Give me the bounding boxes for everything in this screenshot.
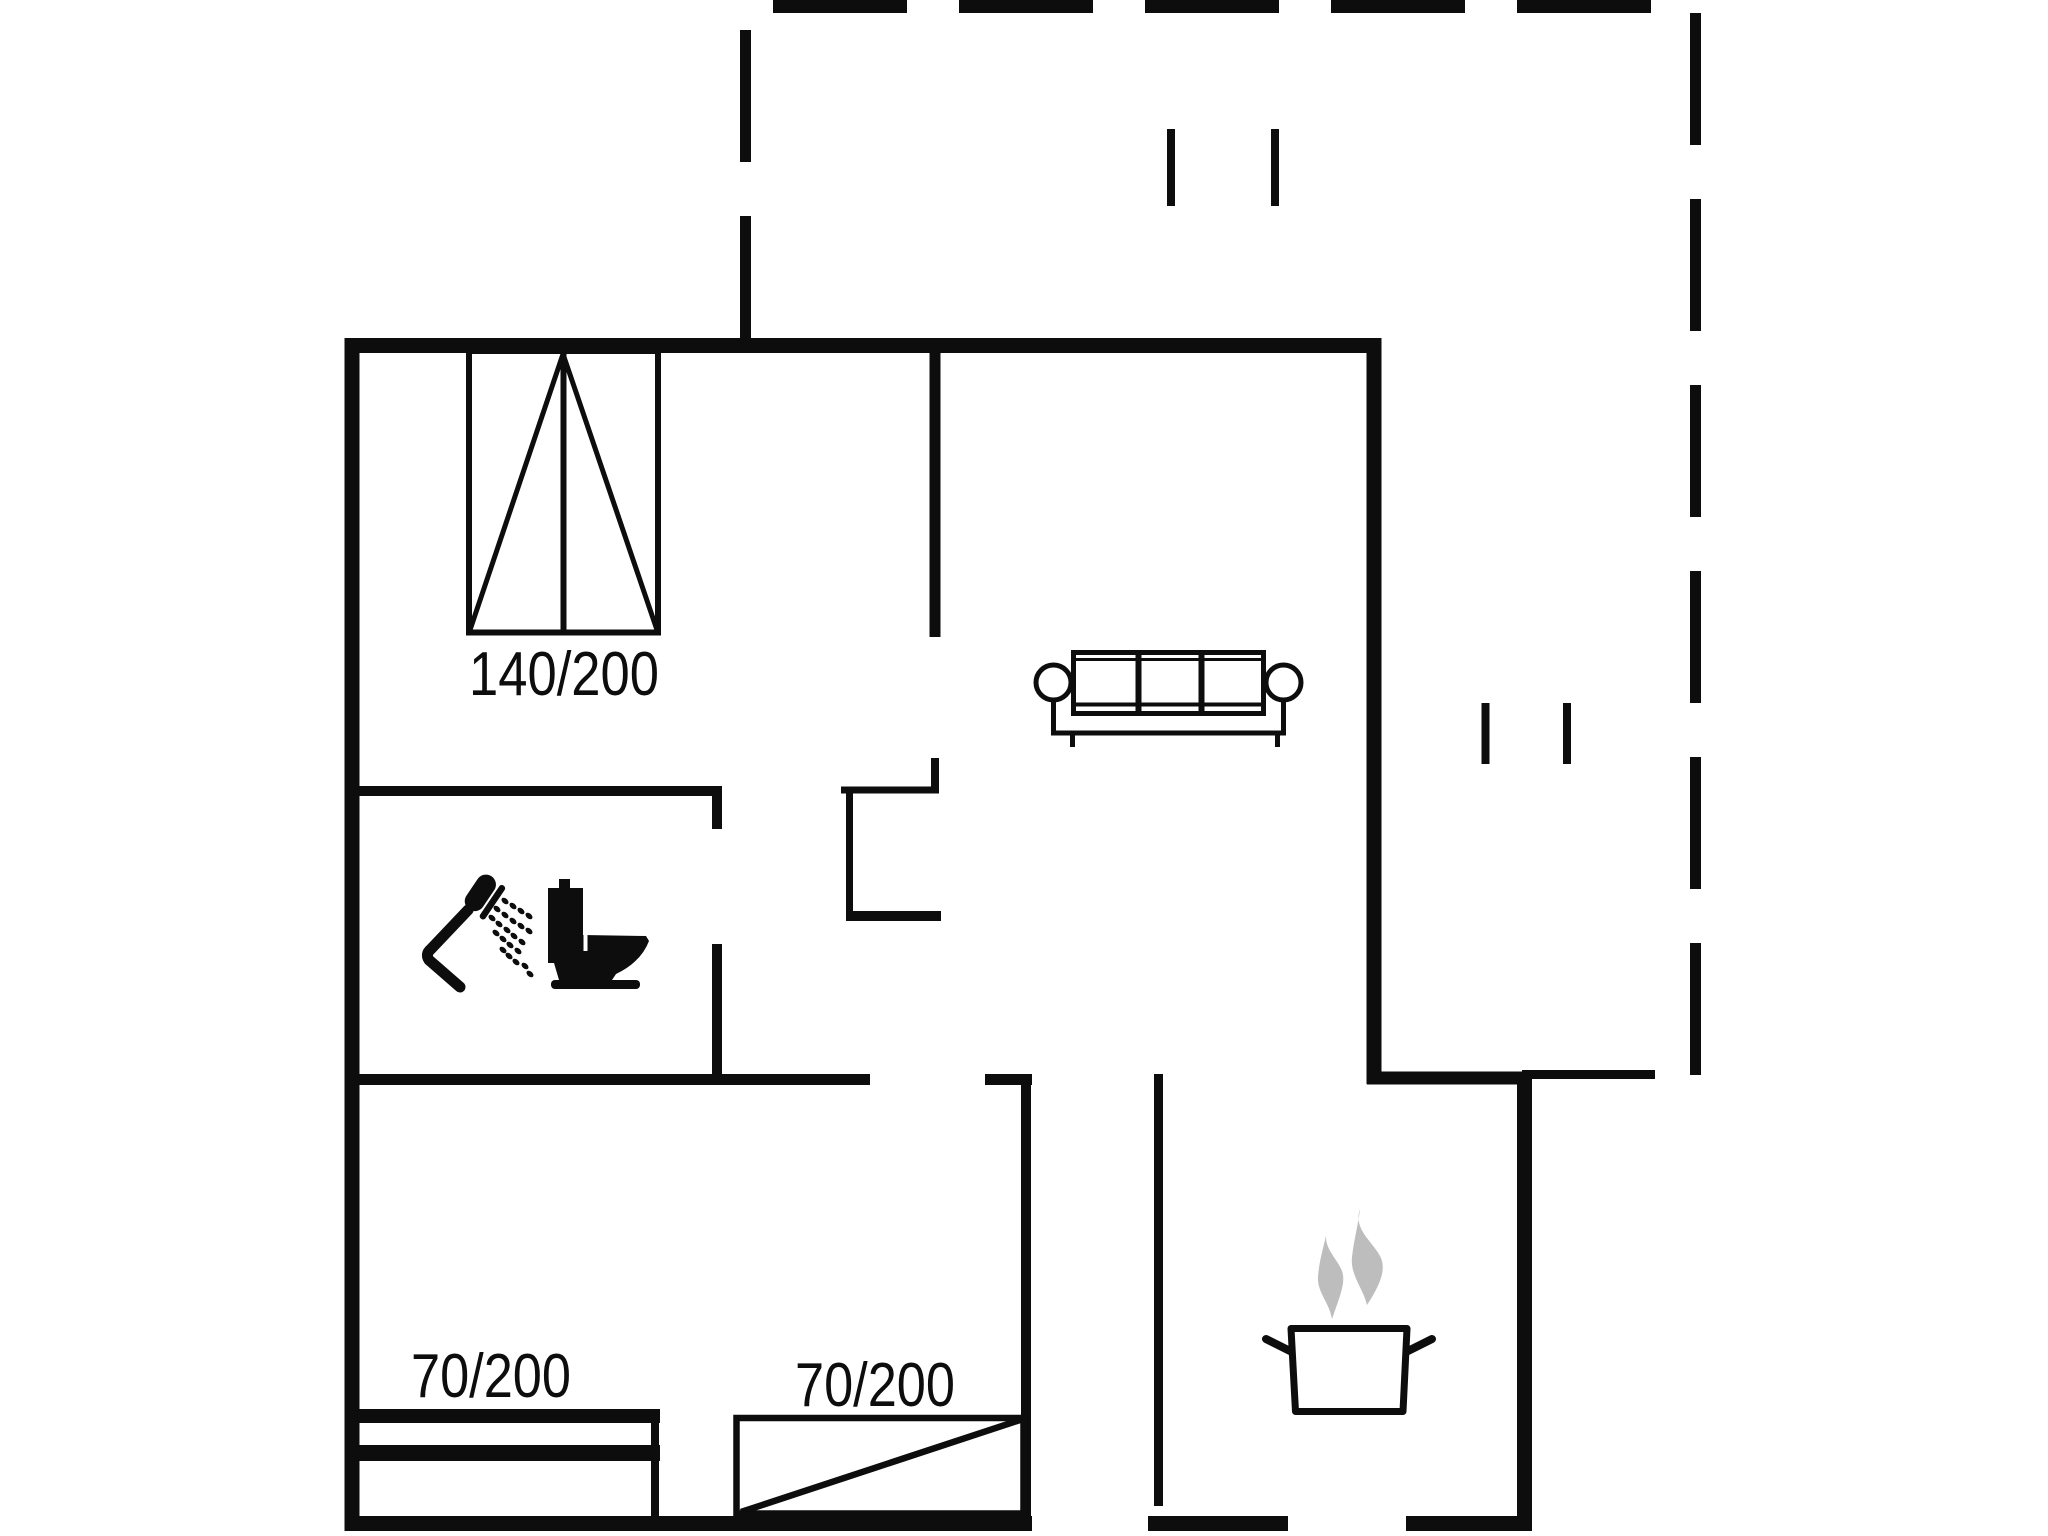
svg-text:140/200: 140/200: [469, 640, 659, 709]
svg-text:70/200: 70/200: [411, 1342, 571, 1411]
svg-text:70/200: 70/200: [795, 1351, 955, 1420]
